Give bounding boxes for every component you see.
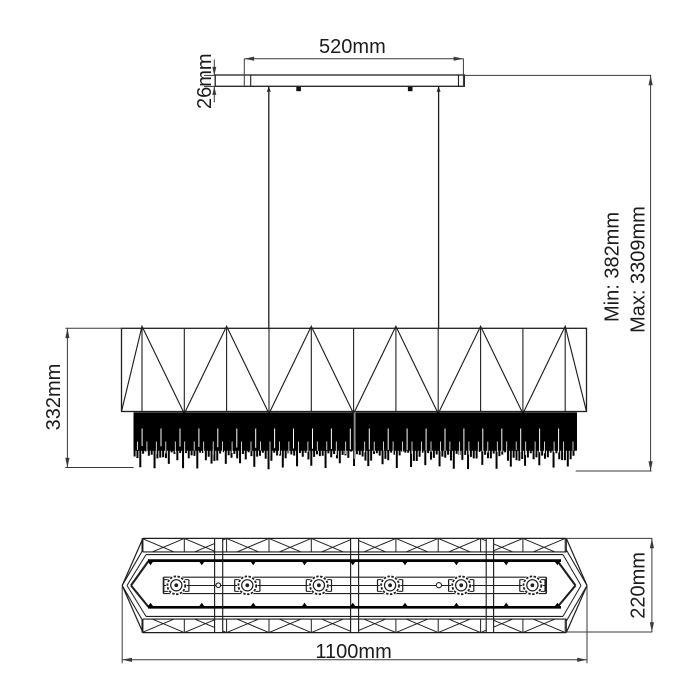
svg-text:26mm: 26mm [194, 53, 216, 109]
svg-text:332mm: 332mm [43, 364, 65, 431]
svg-text:520mm: 520mm [319, 36, 386, 58]
svg-text:1100mm: 1100mm [315, 641, 391, 663]
svg-text:Min: 382mm: Min: 382mm [602, 212, 624, 322]
svg-text:220mm: 220mm [627, 552, 649, 619]
svg-text:Max: 3309mm: Max: 3309mm [627, 206, 649, 333]
